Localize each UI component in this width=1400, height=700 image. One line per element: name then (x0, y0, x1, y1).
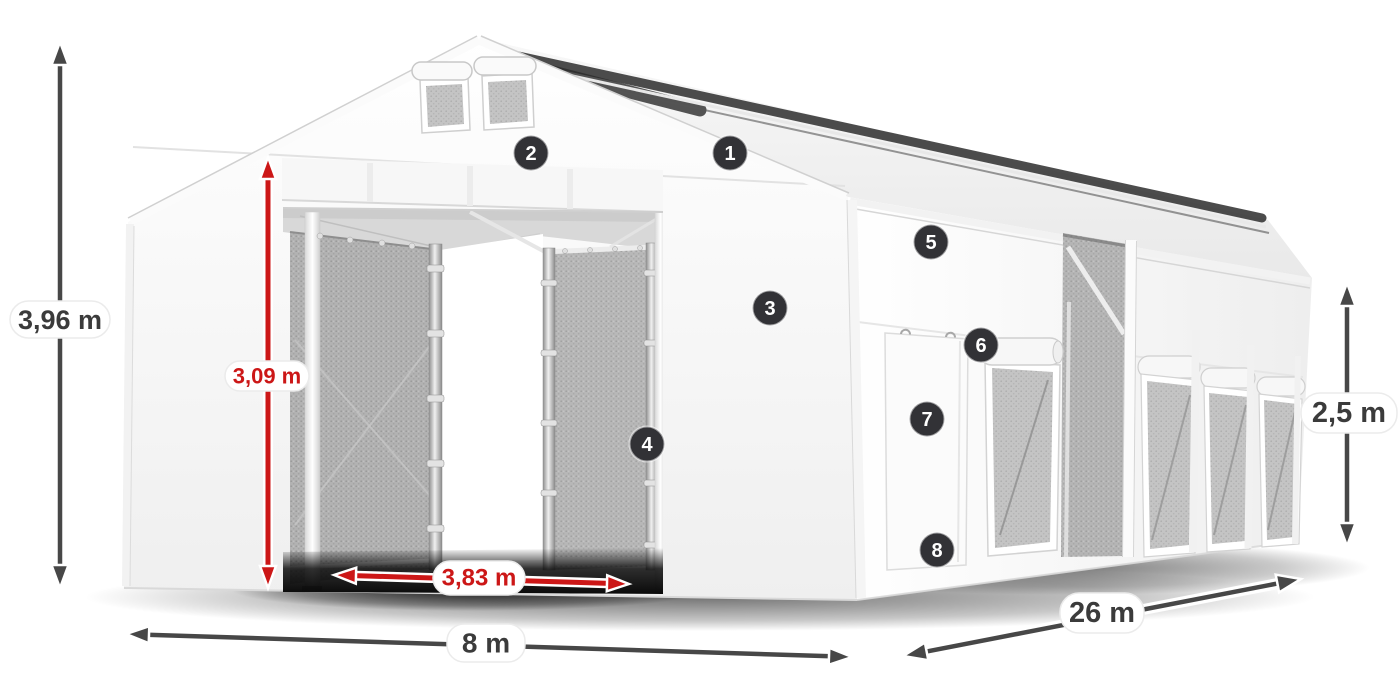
callout-5: 5 (914, 225, 949, 260)
callout-number: 5 (925, 232, 936, 254)
gable-vent-1 (412, 62, 472, 133)
callout-3: 3 (753, 291, 788, 326)
callout-number: 6 (975, 335, 986, 357)
callout-1: 1 (713, 136, 748, 171)
dimension-label-entrance-width: 3,83 m (433, 561, 525, 595)
callout-7: 7 (910, 402, 945, 437)
rolled-cover (412, 62, 472, 80)
callout-2: 2 (514, 136, 549, 171)
dimension-value: 3,83 m (442, 565, 517, 592)
dimension-label-entrance-height: 3,09 m (225, 361, 309, 391)
callout-4: 4 (630, 427, 665, 462)
pass-through-gap (440, 234, 543, 562)
callout-number: 7 (921, 409, 932, 431)
callout-number: 2 (525, 143, 536, 165)
side-door-panel (885, 330, 968, 570)
dimension-value: 26 m (1069, 597, 1135, 629)
dimension-label-total-height: 3,96 m (10, 301, 110, 338)
entrance-opening (283, 208, 666, 594)
dimension-label-side-height: 2,5 m (1301, 393, 1397, 433)
rolled-cover (1201, 368, 1255, 388)
tent-diagram-canvas: 1 2 3 4 5 6 7 8 (0, 0, 1400, 700)
dimension-value: 3,09 m (233, 364, 302, 389)
callout-number: 3 (764, 298, 775, 320)
callout-number: 8 (931, 540, 942, 562)
callout-6: 6 (964, 328, 999, 363)
callout-8: 8 (920, 533, 955, 568)
callout-number: 1 (724, 143, 735, 165)
open-side-bay (1061, 233, 1127, 557)
rolled-cover (474, 57, 536, 75)
side-window-1 (979, 338, 1063, 556)
dimension-label-width: 8 m (447, 624, 525, 662)
dimension-value: 8 m (462, 628, 510, 659)
side-frame-pole (1123, 240, 1137, 557)
dimension-value: 3,96 m (18, 305, 102, 335)
dimension-label-length: 26 m (1060, 593, 1144, 633)
dimension-value: 2,5 m (1312, 397, 1386, 429)
tent-diagram: 1 2 3 4 5 6 7 8 (0, 0, 1400, 700)
gable-vent-2 (474, 57, 536, 130)
callout-number: 4 (641, 434, 653, 456)
corner-band-left (126, 224, 130, 586)
